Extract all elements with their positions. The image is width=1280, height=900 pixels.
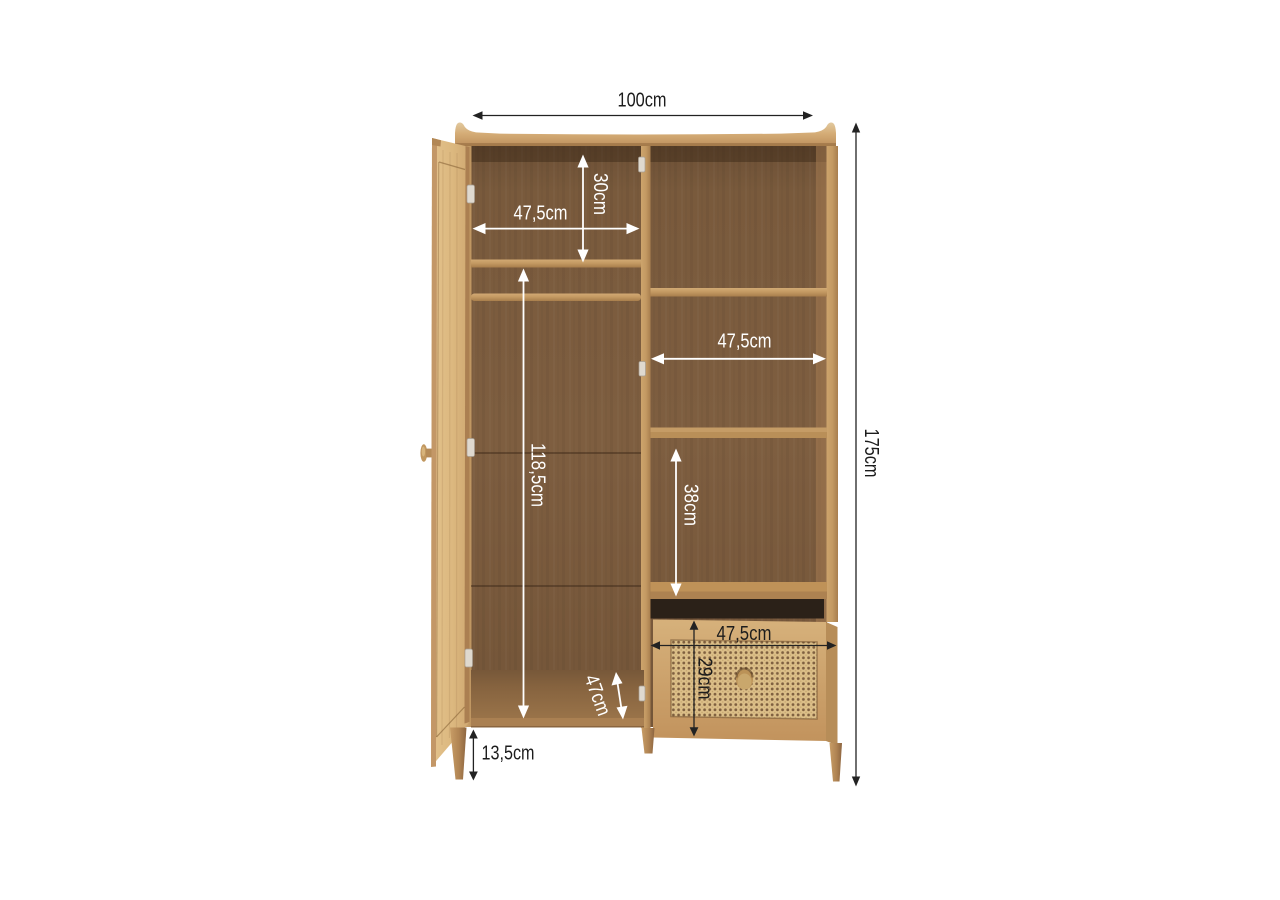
svg-text:47,5cm: 47,5cm	[717, 623, 772, 645]
svg-text:38cm: 38cm	[680, 484, 702, 526]
svg-text:30cm: 30cm	[589, 173, 611, 215]
svg-text:47,5cm: 47,5cm	[514, 203, 568, 225]
svg-text:100cm: 100cm	[618, 90, 667, 112]
svg-text:47,5cm: 47,5cm	[718, 331, 772, 353]
svg-text:118,5cm: 118,5cm	[527, 443, 549, 507]
svg-text:29cm: 29cm	[694, 658, 716, 700]
svg-text:13,5cm: 13,5cm	[482, 743, 535, 765]
svg-text:175cm: 175cm	[860, 429, 882, 478]
